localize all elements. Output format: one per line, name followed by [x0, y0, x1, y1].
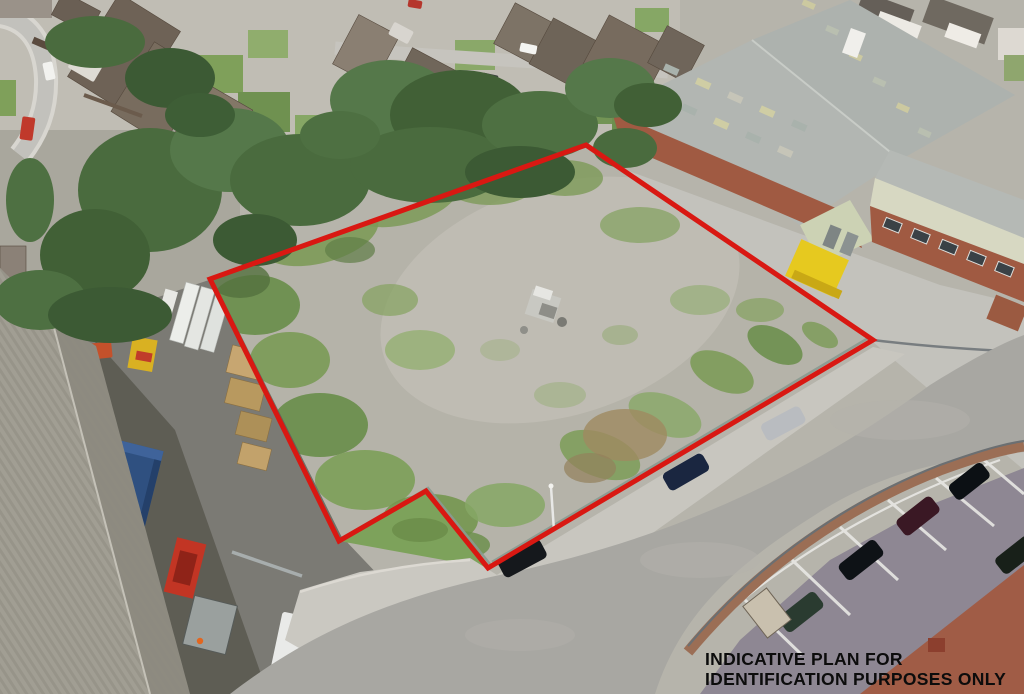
aerial-scene — [0, 0, 1024, 694]
bare-earth-patch — [583, 409, 667, 461]
annotation-line-1: INDICATIVE PLAN FOR — [705, 649, 1006, 669]
worker-hi-vis — [197, 638, 203, 644]
aerial-site-photo: INDICATIVE PLAN FOR IDENTIFICATION PURPO… — [0, 0, 1024, 694]
annotation-line-2: IDENTIFICATION PURPOSES ONLY — [705, 669, 1006, 689]
annotation-text: INDICATIVE PLAN FOR IDENTIFICATION PURPO… — [705, 649, 1006, 689]
